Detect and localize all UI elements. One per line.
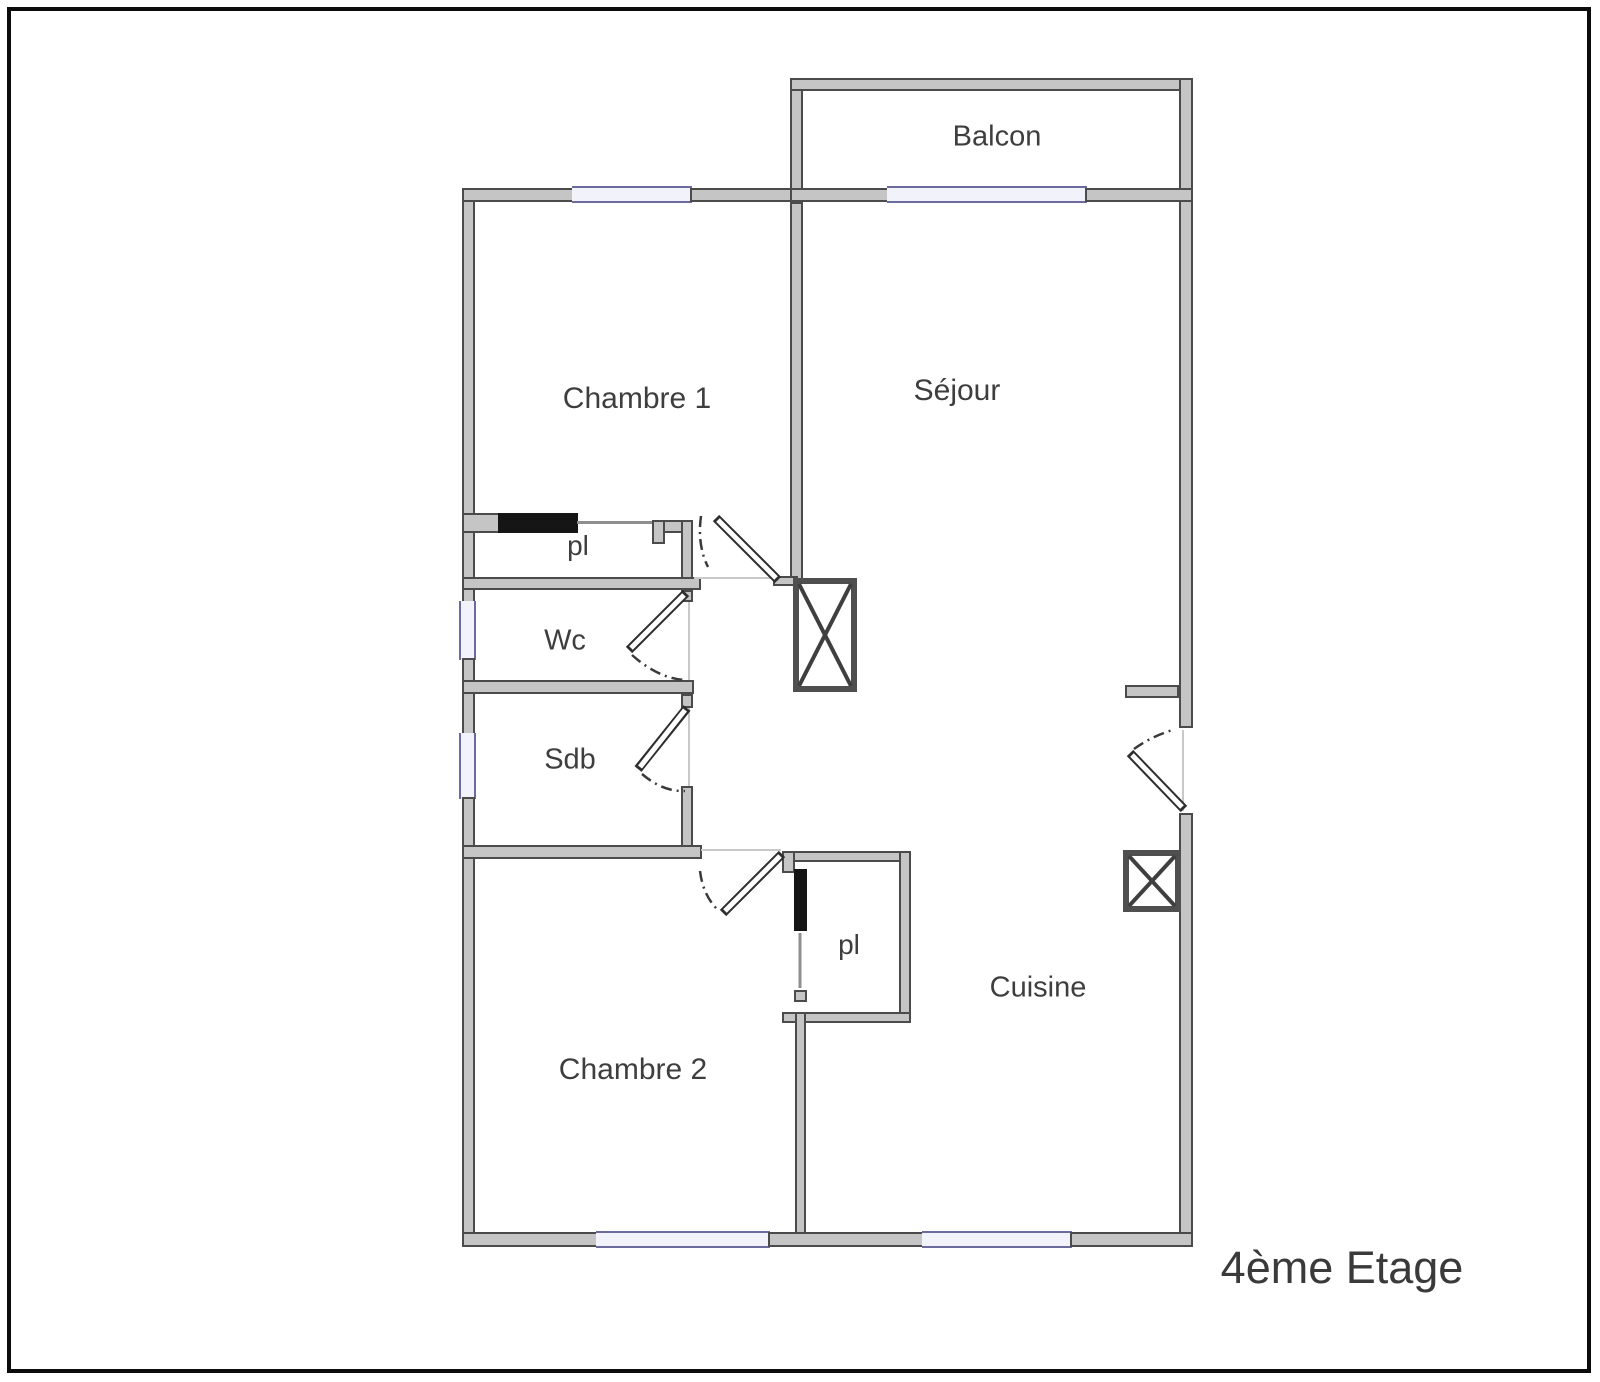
wall-sdb-chambre2	[462, 845, 702, 859]
closet2-right-wall	[899, 851, 911, 1023]
room-label-placard-bas: pl	[838, 929, 860, 961]
exterior-wall-right-upper	[1179, 78, 1193, 728]
door-chambre2-icon	[700, 854, 782, 913]
door-wc-icon	[629, 593, 686, 680]
closet1-corner-leg	[652, 520, 665, 544]
closet1-top-wall	[462, 513, 500, 533]
door-sejour-icon	[700, 516, 778, 580]
room-label-balcon: Balcon	[953, 121, 1042, 154]
room-label-chambre-2: Chambre 2	[559, 1053, 707, 1087]
exterior-wall-bottom-right	[1070, 1232, 1193, 1247]
sejour-door-jamb	[773, 576, 798, 586]
room-label-chambre-1: Chambre 1	[563, 382, 711, 416]
exterior-wall-bottom-left	[462, 1232, 598, 1247]
sejour-top-wall-right	[1085, 188, 1193, 202]
exterior-wall-right-lower	[1179, 813, 1193, 1247]
balcony-wall-top	[790, 78, 1193, 91]
room-label-sdb: Sdb	[544, 744, 596, 777]
room-label-wc: Wc	[544, 625, 586, 658]
exterior-wall-top-left	[462, 188, 574, 202]
exterior-wall-bottom-middle	[768, 1232, 924, 1247]
floor-plan: Balcon Chambre 1 Séjour pl Wc Sdb Chambr…	[0, 0, 1600, 1382]
window-wc-icon	[459, 601, 476, 660]
door-sdb-icon	[638, 708, 687, 791]
closet2-top-wall	[782, 851, 911, 862]
closet2-left-wall-stub	[794, 990, 807, 1002]
closet2-sliding-door-icon	[794, 869, 807, 931]
window-chambre1-icon	[572, 186, 692, 203]
exterior-wall-left-lower	[462, 797, 475, 1247]
door-entrance-icon	[1130, 730, 1184, 809]
wall-sejour-cuisine-stub	[1125, 685, 1179, 698]
wall-wc-sdb	[462, 680, 694, 694]
wc-door-jamb	[681, 590, 693, 602]
wall-chambre1-sejour	[790, 202, 803, 580]
exterior-wall-left-upper	[462, 188, 475, 603]
door-threshold-lines	[689, 578, 1183, 850]
duct-shaft-icon-cuisine	[1126, 853, 1178, 909]
window-sdb-icon	[459, 733, 476, 799]
window-cuisine-icon	[922, 1231, 1072, 1248]
room-label-cuisine: Cuisine	[990, 972, 1087, 1005]
room-label-sejour: Séjour	[914, 374, 1001, 408]
room-label-placard-haut: pl	[567, 530, 589, 562]
window-balcony-icon	[887, 186, 1087, 203]
exterior-wall-top-right	[690, 188, 793, 202]
wall-chambre2-cuisine	[795, 1012, 806, 1234]
closet1-track-line	[577, 521, 655, 524]
balcony-wall-left	[790, 78, 803, 190]
exterior-wall-left-middle	[462, 658, 475, 735]
closet1-sliding-door-icon	[498, 513, 578, 533]
sdb-door-jamb	[681, 694, 693, 708]
floor-title: 4ème Etage	[1221, 1242, 1464, 1294]
sejour-top-wall-left	[790, 188, 889, 202]
wall-closet1-wc	[462, 577, 701, 590]
duct-shaft-icon-hall	[796, 581, 854, 689]
window-chambre2-icon	[596, 1231, 770, 1248]
